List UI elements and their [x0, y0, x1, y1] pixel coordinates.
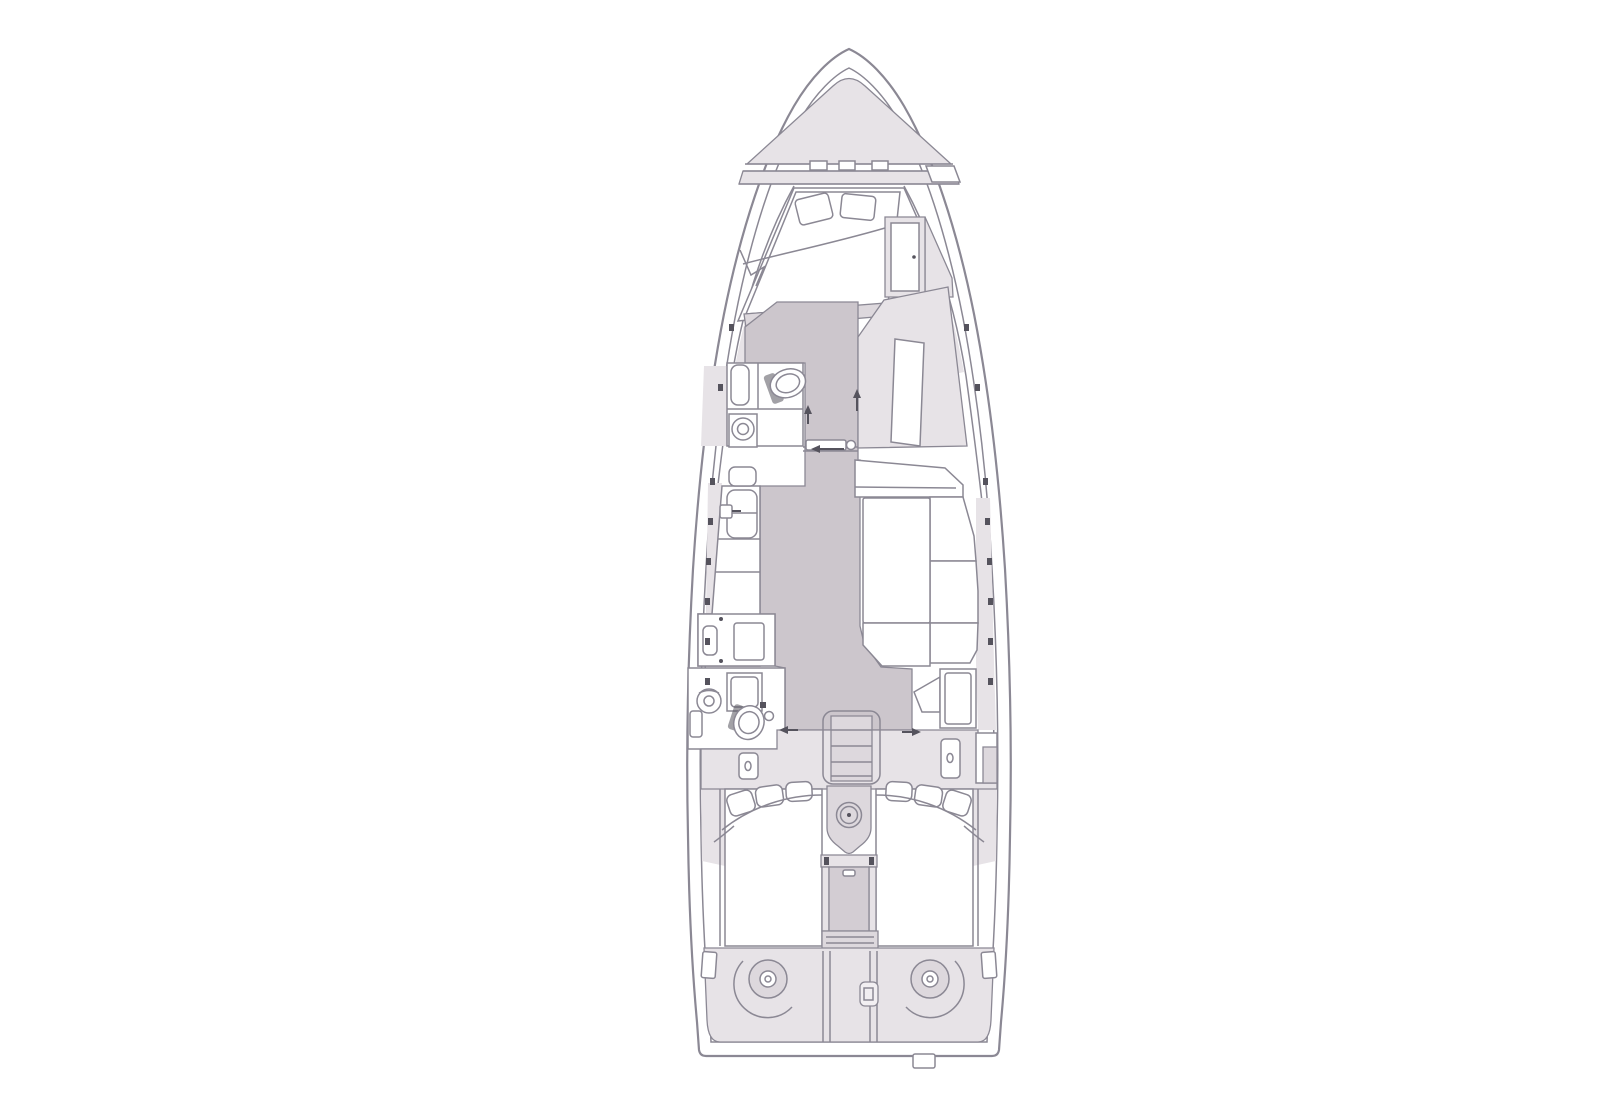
transom-hatch: [701, 952, 717, 979]
chart-side-shade: [976, 663, 996, 730]
settee-hull-bench: [930, 561, 978, 623]
steering-pedestal: [821, 786, 877, 867]
stern-fitting: [913, 1054, 935, 1068]
cockpit-locker: [739, 753, 758, 779]
foredeck-triangle: [747, 79, 951, 165]
door-pivot: [765, 712, 774, 721]
companionway-stairs: [823, 711, 880, 784]
windlass-hatch: [872, 161, 888, 170]
door-pivot: [847, 441, 856, 450]
floor-plan-svg: [40, 16, 1620, 1096]
shower-column: [690, 711, 702, 737]
nav-cabinet-door: [945, 673, 971, 724]
windlass-hatch: [810, 161, 827, 170]
aft-head: [688, 668, 785, 749]
boat-floor-plan: [40, 16, 1620, 1096]
settee-hull-bench: [930, 623, 978, 663]
cockpit-locker: [941, 739, 960, 778]
latch: [760, 702, 766, 708]
salon-dinette: [855, 460, 978, 666]
round-sink: [697, 689, 721, 713]
round-sink: [729, 414, 757, 447]
deck-hatch: [926, 166, 960, 182]
walkway-mark: [843, 870, 855, 876]
foredeck-strip: [739, 171, 959, 184]
head-side-shade: [701, 366, 727, 446]
galley-sink-small: [729, 467, 756, 486]
side-step-tread: [983, 747, 997, 783]
center-walkway: [822, 867, 878, 955]
shower-pan: [731, 365, 749, 405]
pedestal-base: [821, 855, 877, 867]
windlass-hatch: [839, 161, 855, 170]
dinette-table: [863, 498, 930, 623]
gate-latch: [860, 982, 878, 1006]
pillow: [840, 193, 876, 220]
shower-pan: [727, 673, 762, 711]
aft-side-shade: [701, 789, 725, 866]
transom-deck: [704, 948, 994, 1042]
unit-slanted-door: [891, 339, 924, 446]
